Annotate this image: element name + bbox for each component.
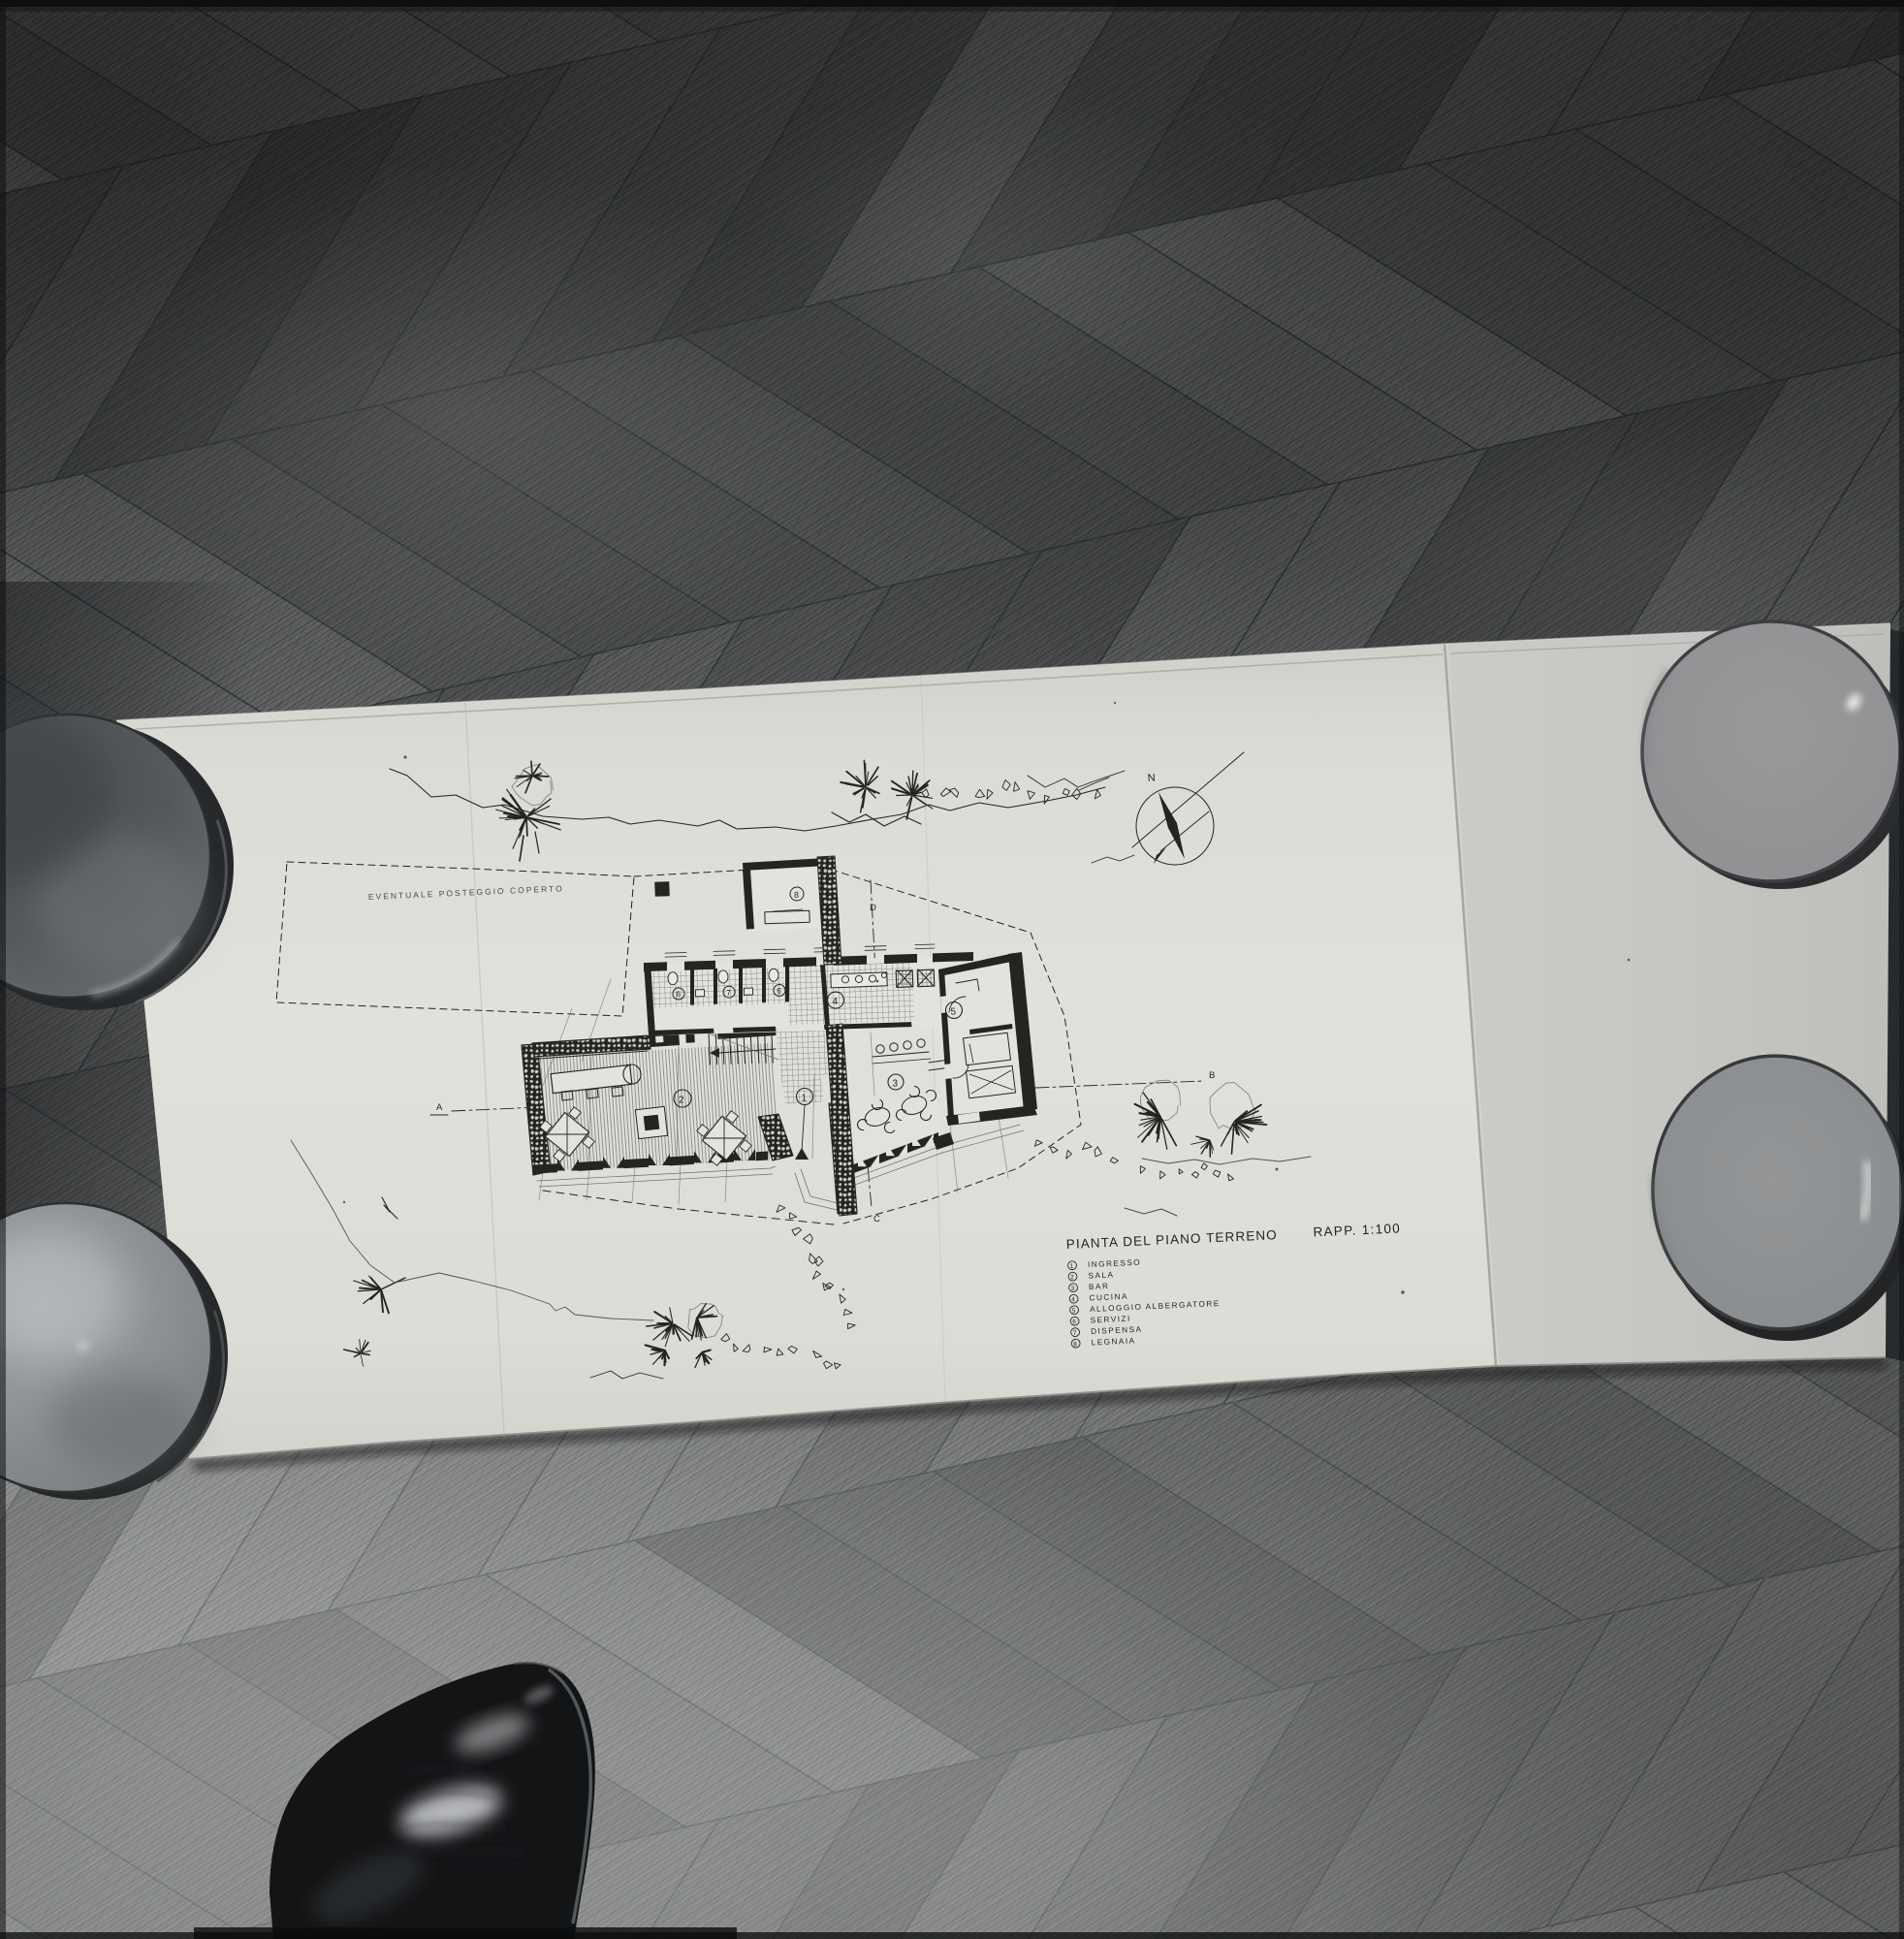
- svg-text:2: 2: [679, 1096, 684, 1106]
- svg-text:7: 7: [726, 989, 731, 998]
- svg-text:2: 2: [1070, 1274, 1074, 1281]
- svg-text:8: 8: [794, 890, 799, 900]
- svg-text:N: N: [1147, 772, 1156, 784]
- svg-text:BAR: BAR: [1089, 1282, 1110, 1291]
- svg-text:3: 3: [893, 1079, 899, 1090]
- svg-text:4: 4: [1071, 1296, 1075, 1303]
- svg-text:CUCINA: CUCINA: [1089, 1292, 1128, 1303]
- svg-text:6: 6: [676, 990, 681, 999]
- svg-text:5: 5: [1072, 1308, 1076, 1315]
- svg-text:4: 4: [833, 997, 839, 1007]
- svg-text:SERVIZI: SERVIZI: [1090, 1315, 1131, 1325]
- svg-text:C: C: [873, 1214, 880, 1224]
- svg-text:5: 5: [951, 1006, 957, 1017]
- svg-text:7: 7: [1073, 1330, 1077, 1337]
- svg-text:1: 1: [1070, 1263, 1074, 1270]
- svg-text:6: 6: [777, 987, 781, 996]
- svg-text:SALA: SALA: [1088, 1270, 1114, 1280]
- svg-text:8: 8: [1073, 1341, 1077, 1348]
- svg-text:D: D: [870, 903, 876, 913]
- svg-text:A: A: [436, 1102, 443, 1113]
- svg-text:6: 6: [1072, 1319, 1076, 1325]
- svg-text:3: 3: [1071, 1286, 1075, 1292]
- svg-text:B: B: [1209, 1070, 1215, 1081]
